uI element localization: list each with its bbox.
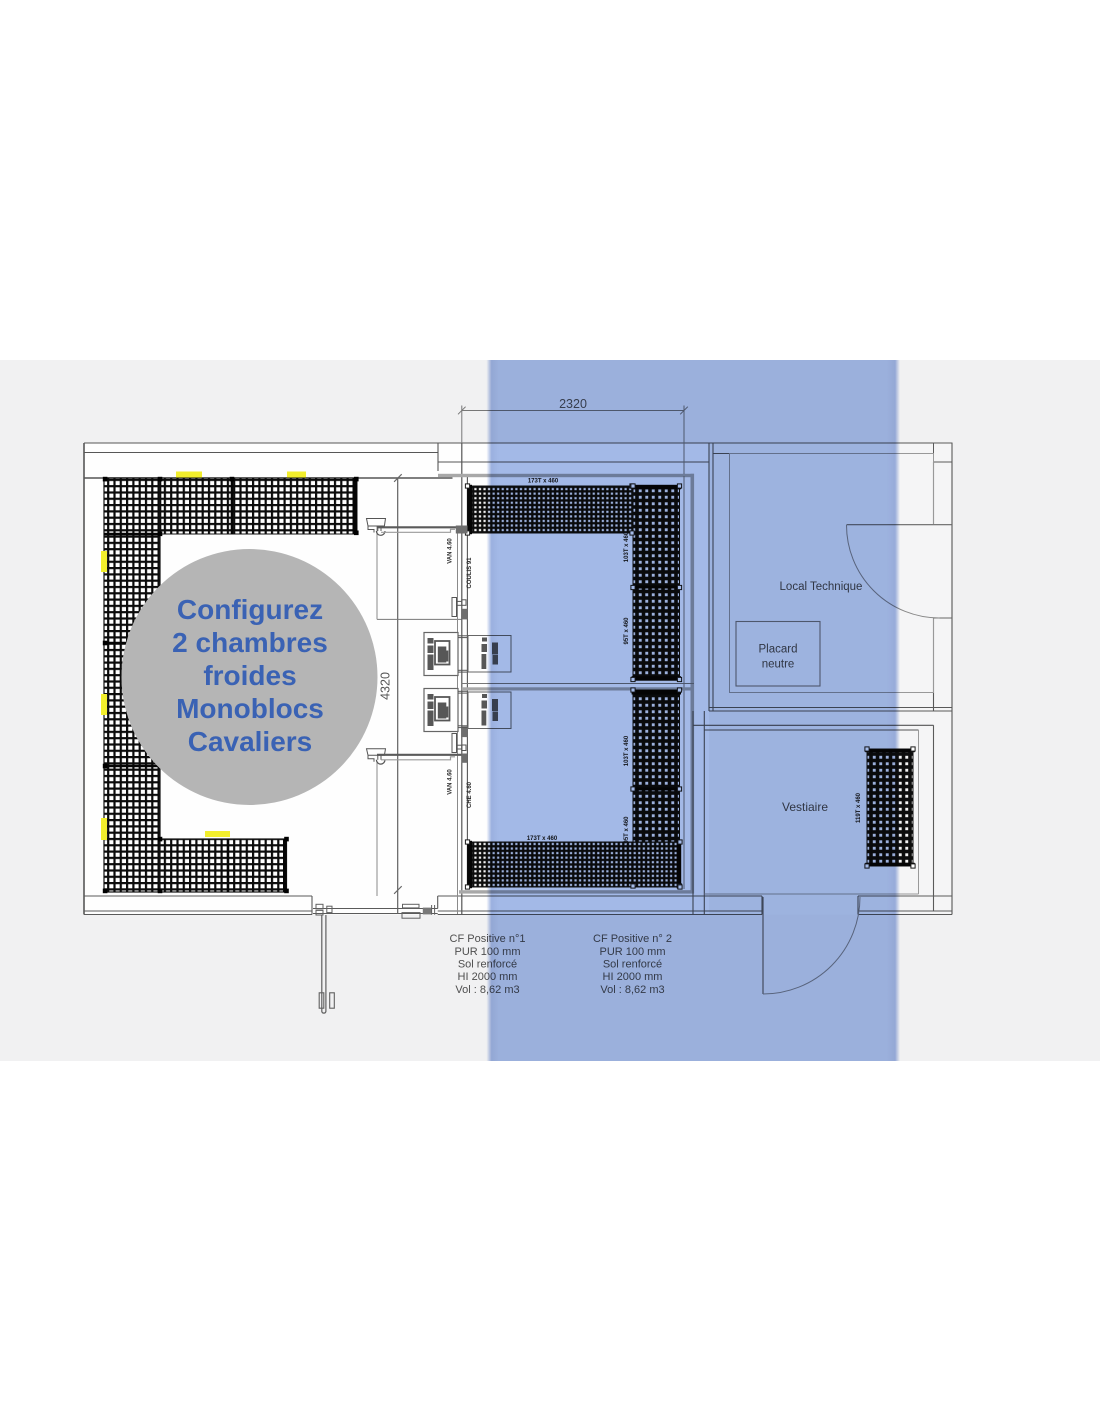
svg-text:Cavaliers: Cavaliers bbox=[188, 726, 313, 757]
svg-text:froides: froides bbox=[203, 660, 296, 691]
svg-text:2 chambres: 2 chambres bbox=[172, 627, 328, 658]
svg-text:CHE 4.60: CHE 4.60 bbox=[467, 781, 473, 808]
svg-text:VAN 4.60: VAN 4.60 bbox=[448, 769, 454, 795]
svg-text:VAN 4.60: VAN 4.60 bbox=[448, 538, 454, 564]
svg-text:4320: 4320 bbox=[379, 672, 393, 700]
svg-text:Monoblocs: Monoblocs bbox=[176, 693, 324, 724]
svg-text:Configurez: Configurez bbox=[177, 594, 323, 625]
svg-text:COULIS 91: COULIS 91 bbox=[467, 557, 473, 589]
